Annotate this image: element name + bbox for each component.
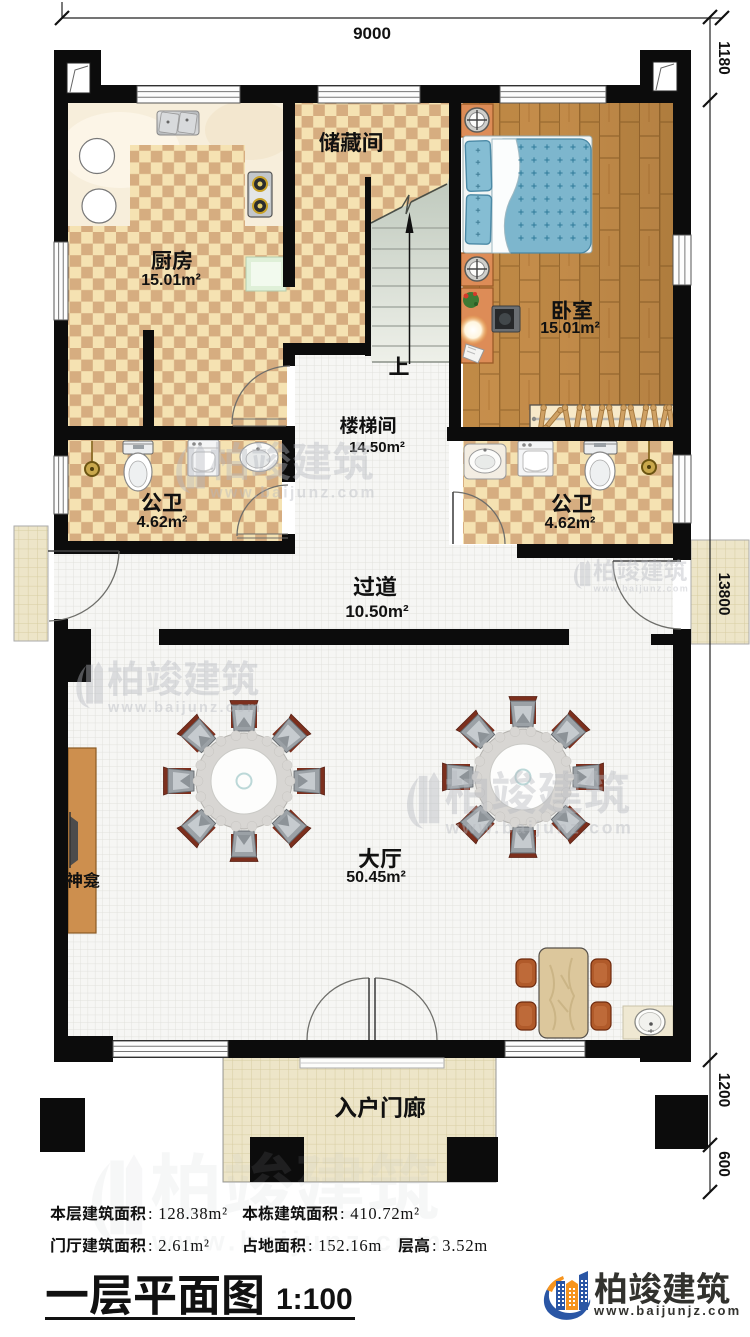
svg-text:4.62m²: 4.62m² [545, 515, 596, 532]
svg-text:13800: 13800 [715, 572, 732, 615]
svg-text:600: 600 [715, 1151, 732, 1177]
svg-text:1180: 1180 [715, 41, 732, 75]
svg-text:1:100: 1:100 [276, 1283, 353, 1316]
svg-text:: 2.61m²: : 2.61m² [148, 1236, 210, 1255]
svg-text:: 128.38m²: : 128.38m² [148, 1204, 228, 1223]
svg-text:www.baijunz.com: www.baijunz.com [445, 818, 634, 838]
svg-text:www.baijunz.com: www.baijunz.com [209, 485, 376, 502]
svg-text:50.45m²: 50.45m² [346, 869, 406, 886]
svg-text:: 410.72m²: : 410.72m² [340, 1204, 420, 1223]
svg-text:www.baijunz.com: www.baijunz.com [107, 700, 262, 716]
svg-text:15.01m²: 15.01m² [141, 272, 201, 289]
svg-text:: 152.16m: : 152.16m [308, 1236, 382, 1255]
svg-text:9000: 9000 [353, 24, 391, 43]
svg-text:1200: 1200 [715, 1073, 732, 1107]
svg-text:4.62m²: 4.62m² [137, 514, 188, 531]
svg-text:15.01m²: 15.01m² [540, 320, 600, 337]
svg-text:www.baijunz.com: www.baijunz.com [593, 583, 690, 593]
svg-text:www.baijunjz.com: www.baijunjz.com [593, 1303, 741, 1318]
svg-text:: 3.52m: : 3.52m [432, 1236, 488, 1255]
svg-text:10.50m²: 10.50m² [345, 602, 409, 621]
